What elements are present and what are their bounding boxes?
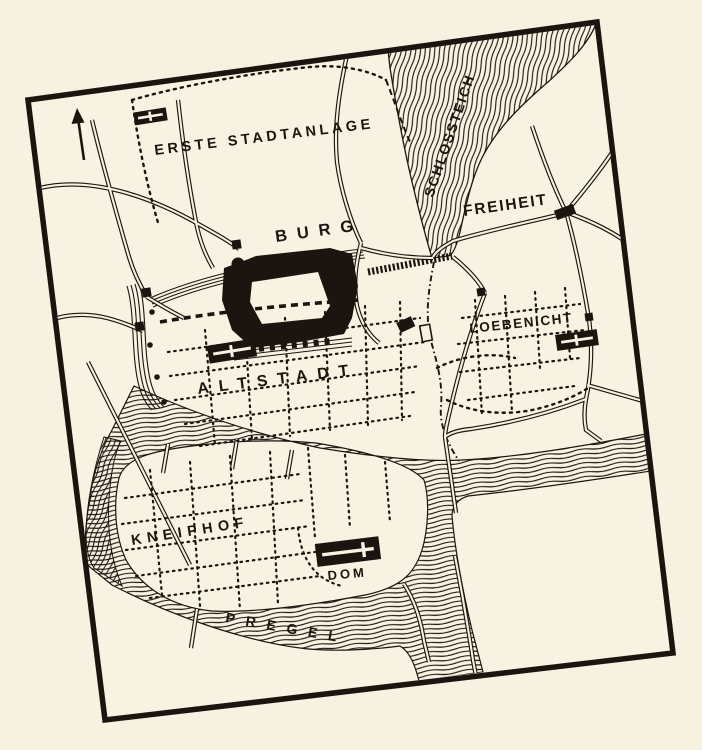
map-canvas: ERSTE STADTANLAGE SCHLOSSTEICH FREIHEIT … [0,0,702,750]
historic-city-map: ERSTE STADTANLAGE SCHLOSSTEICH FREIHEIT … [0,0,702,750]
